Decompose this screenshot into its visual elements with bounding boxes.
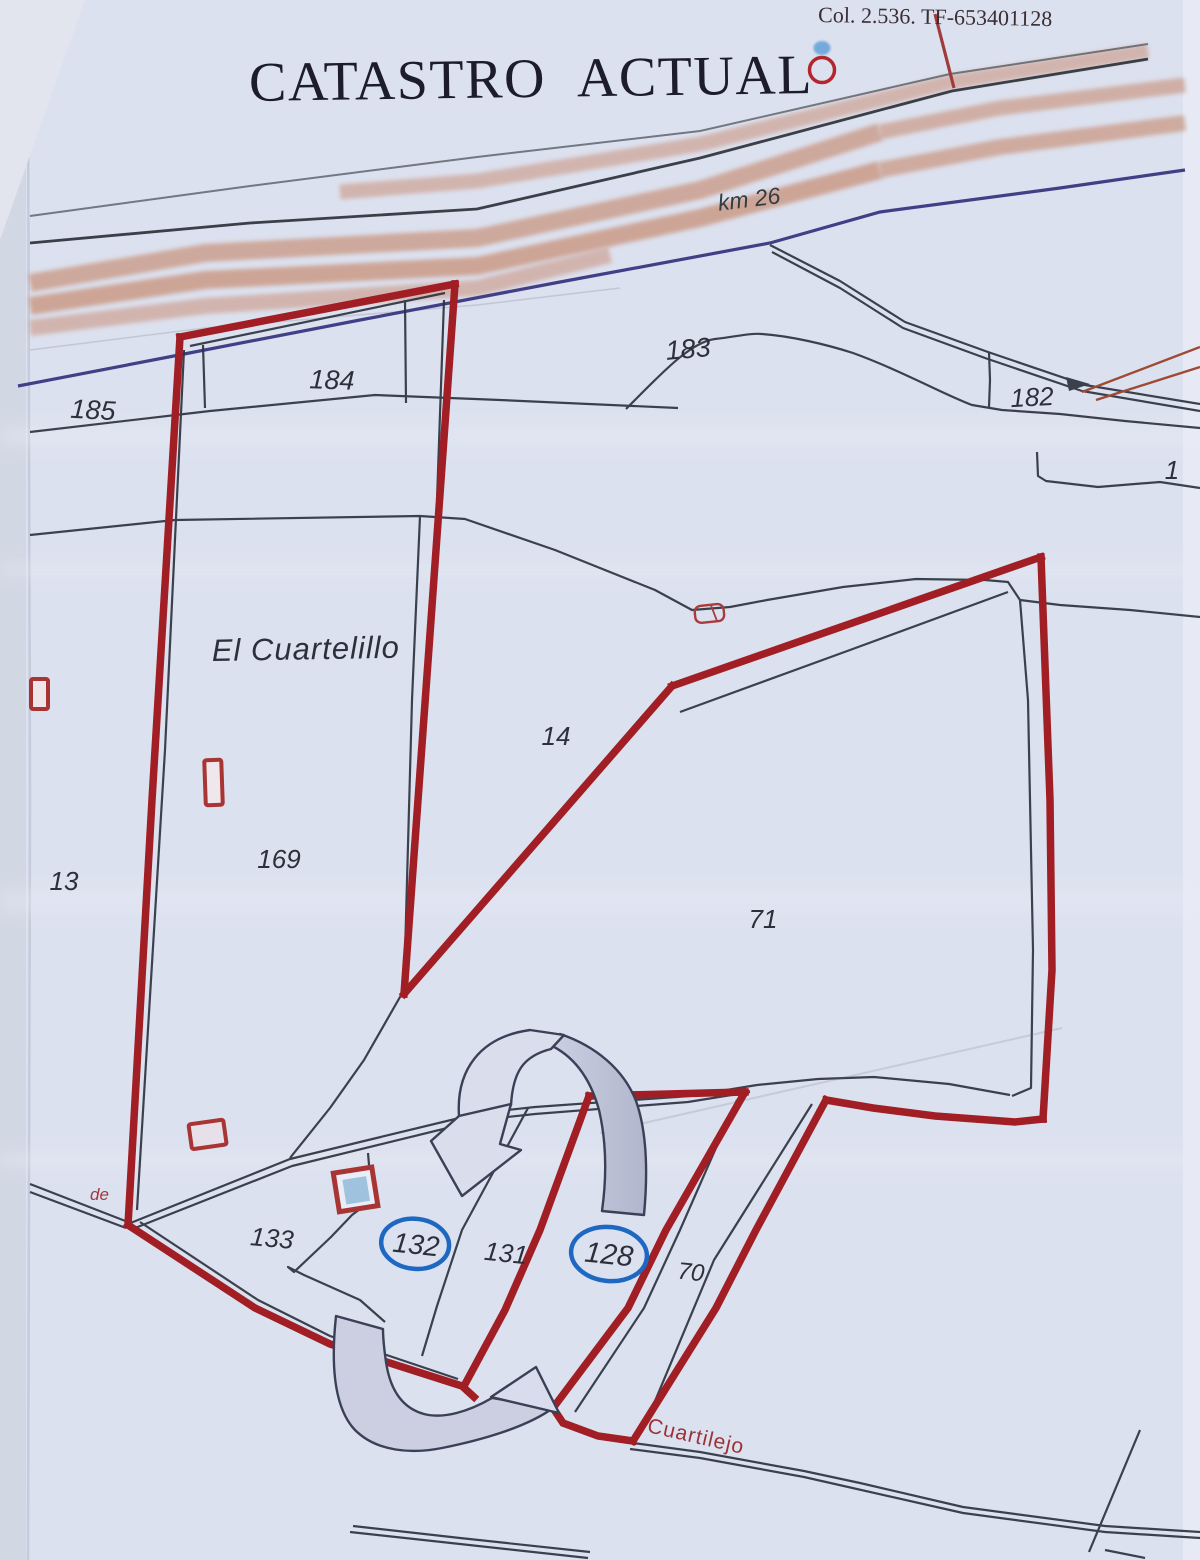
svg-text:El Cuartelillo: El Cuartelillo [212,630,401,668]
svg-text:128: 128 [583,1237,634,1274]
svg-text:14: 14 [542,721,571,751]
svg-text:183: 183 [664,332,712,366]
svg-text:71: 71 [749,904,778,934]
svg-text:1: 1 [1165,455,1179,485]
svg-text:131: 131 [483,1236,529,1270]
svg-text:de: de [90,1185,109,1204]
svg-text:13: 13 [50,866,79,896]
svg-text:185: 185 [70,394,118,426]
svg-text:184: 184 [309,364,355,396]
svg-text:Col. 2.536. TF-653401128: Col. 2.536. TF-653401128 [818,2,1052,31]
svg-text:70: 70 [676,1258,706,1288]
svg-text:182: 182 [1010,381,1055,413]
svg-text:132: 132 [391,1227,441,1263]
svg-text:169: 169 [257,844,300,874]
svg-text:133: 133 [249,1221,295,1255]
svg-text:CATASTRO ACTUAL: CATASTRO ACTUAL [249,44,814,114]
